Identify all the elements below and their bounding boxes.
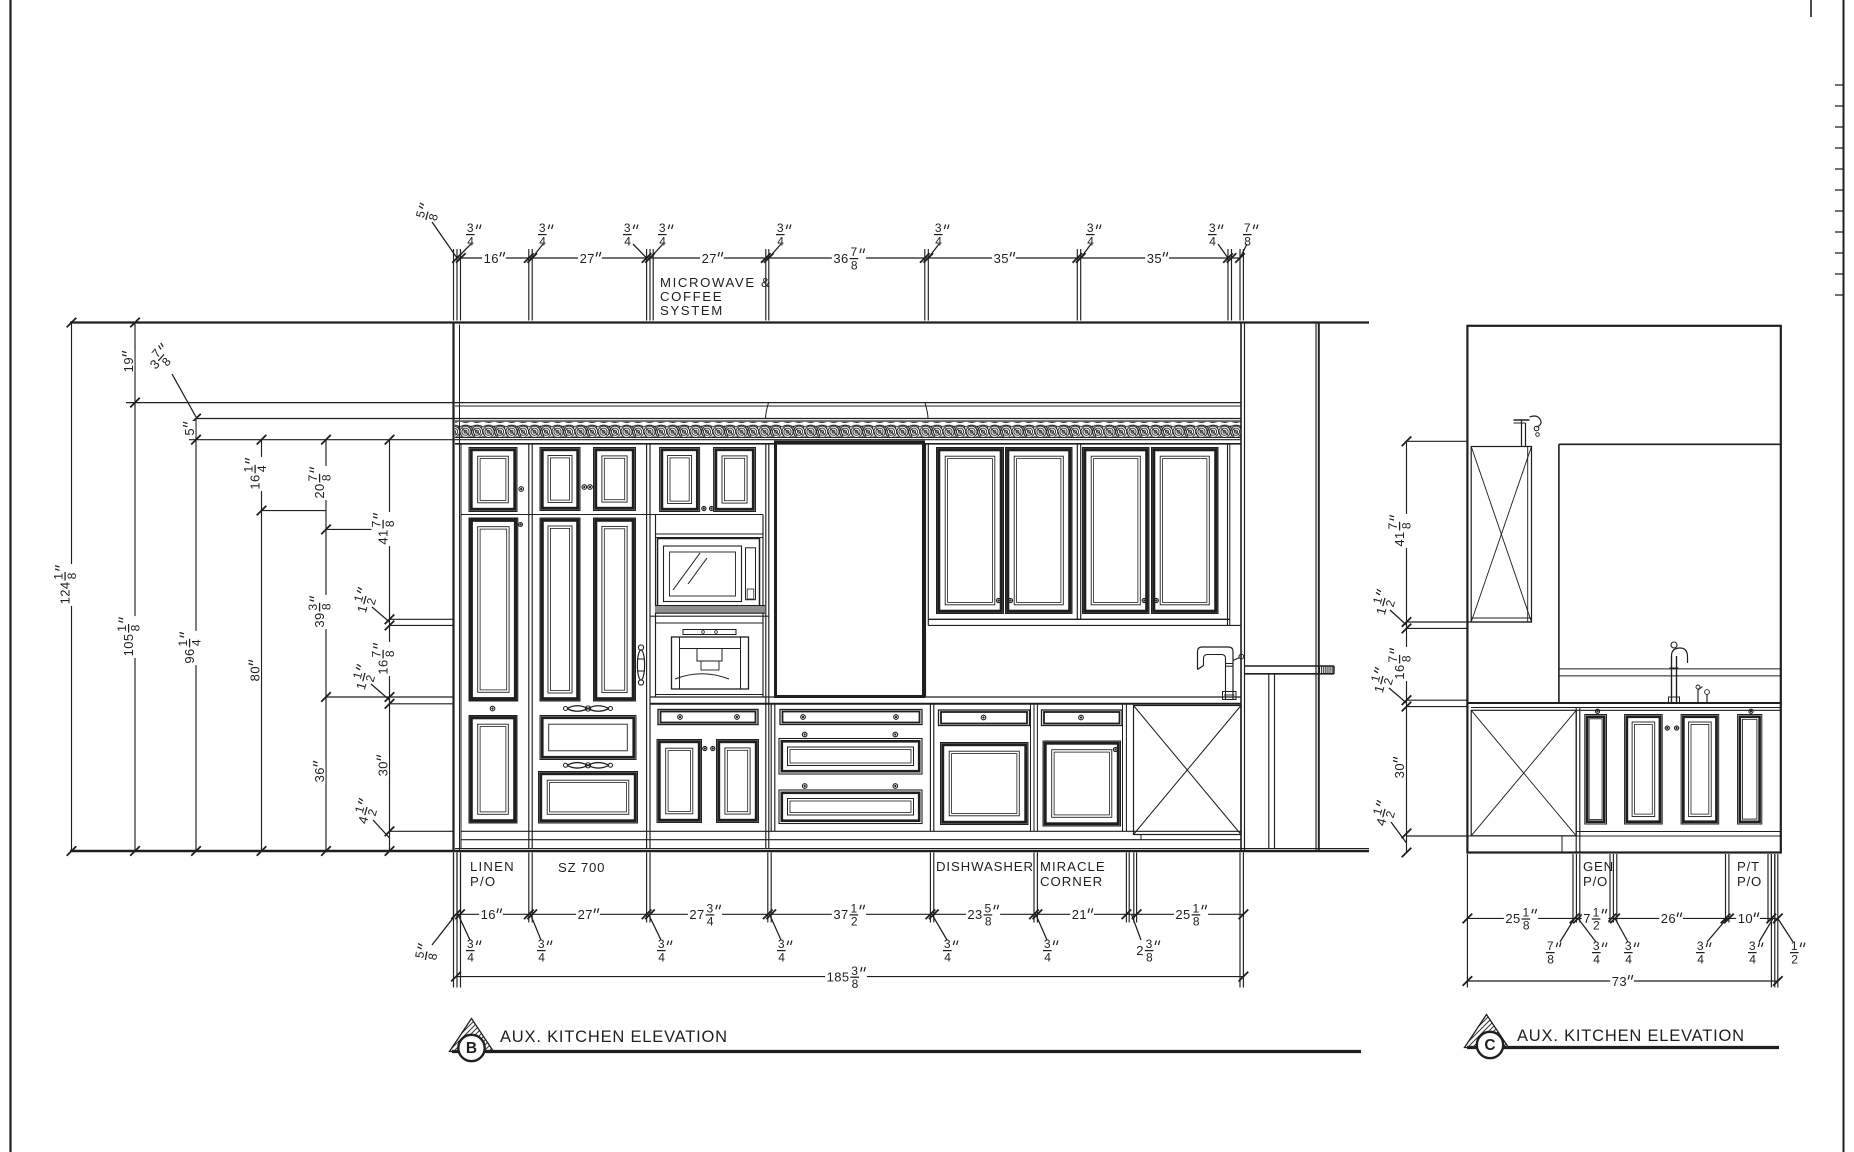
svg-text:7: 7 bbox=[1386, 523, 1400, 530]
svg-text:8: 8 bbox=[383, 520, 397, 527]
svg-text:4: 4 bbox=[1593, 952, 1600, 966]
svg-text:7: 7 bbox=[1547, 939, 1554, 953]
svg-text:DISHWASHER: DISHWASHER bbox=[936, 859, 1034, 874]
svg-text:3: 3 bbox=[706, 902, 713, 916]
svg-text:41: 41 bbox=[375, 529, 390, 544]
svg-text:3: 3 bbox=[1044, 937, 1051, 951]
svg-text:3: 3 bbox=[1593, 939, 1600, 953]
svg-text:16: 16 bbox=[1392, 664, 1407, 679]
svg-text:16: 16 bbox=[375, 659, 390, 674]
svg-text:AUX. KITCHEN ELEVATION: AUX. KITCHEN ELEVATION bbox=[500, 1028, 728, 1046]
svg-text:8: 8 bbox=[383, 650, 397, 657]
svg-text:8: 8 bbox=[1399, 655, 1413, 662]
svg-text:4: 4 bbox=[707, 915, 714, 929]
svg-text:10: 10 bbox=[1738, 911, 1753, 926]
svg-text:1: 1 bbox=[52, 573, 66, 580]
svg-text:1: 1 bbox=[242, 466, 256, 473]
svg-text:SYSTEM: SYSTEM bbox=[660, 303, 724, 318]
svg-text:MICROWAVE &: MICROWAVE & bbox=[660, 275, 771, 290]
svg-text:25: 25 bbox=[1175, 907, 1190, 922]
svg-text:3: 3 bbox=[624, 221, 631, 235]
svg-text:P/O: P/O bbox=[470, 874, 496, 889]
svg-text:4: 4 bbox=[1044, 950, 1051, 964]
svg-text:SZ 700: SZ 700 bbox=[558, 860, 605, 875]
svg-text:20: 20 bbox=[312, 483, 327, 498]
svg-text:5: 5 bbox=[182, 428, 197, 436]
svg-text:7: 7 bbox=[1244, 221, 1251, 235]
svg-text:185: 185 bbox=[827, 969, 850, 984]
svg-text:4: 4 bbox=[1749, 952, 1756, 966]
svg-text:3: 3 bbox=[467, 937, 474, 951]
svg-text:1: 1 bbox=[1791, 939, 1798, 953]
svg-text:8: 8 bbox=[1399, 522, 1413, 529]
svg-text:4: 4 bbox=[777, 234, 784, 248]
svg-text:3: 3 bbox=[467, 221, 474, 235]
svg-text:4: 4 bbox=[255, 465, 269, 472]
svg-text:3: 3 bbox=[539, 221, 546, 235]
svg-text:P/T: P/T bbox=[1737, 859, 1760, 874]
svg-text:7: 7 bbox=[1583, 911, 1591, 926]
svg-text:16: 16 bbox=[481, 907, 496, 922]
svg-text:4: 4 bbox=[467, 234, 474, 248]
svg-text:8: 8 bbox=[1523, 919, 1530, 933]
svg-text:73: 73 bbox=[1612, 974, 1627, 989]
svg-text:25: 25 bbox=[1505, 911, 1520, 926]
svg-text:3: 3 bbox=[538, 937, 545, 951]
svg-text:8: 8 bbox=[851, 258, 858, 272]
svg-text:3: 3 bbox=[1697, 939, 1704, 953]
svg-text:4: 4 bbox=[624, 234, 631, 248]
svg-text:4: 4 bbox=[658, 950, 665, 964]
svg-text:MIRACLE: MIRACLE bbox=[1040, 859, 1106, 874]
svg-text:3: 3 bbox=[1209, 221, 1216, 235]
svg-text:16: 16 bbox=[484, 251, 499, 266]
svg-text:4: 4 bbox=[1087, 234, 1094, 248]
svg-text:35: 35 bbox=[994, 251, 1009, 266]
svg-text:4: 4 bbox=[935, 234, 942, 248]
svg-text:4: 4 bbox=[778, 950, 785, 964]
svg-text:4: 4 bbox=[539, 234, 546, 248]
svg-text:8: 8 bbox=[985, 915, 992, 929]
svg-text:41: 41 bbox=[1392, 531, 1407, 546]
svg-text:3: 3 bbox=[935, 221, 942, 235]
svg-text:1: 1 bbox=[850, 902, 857, 916]
svg-text:3: 3 bbox=[1146, 937, 1153, 951]
svg-text:4: 4 bbox=[538, 950, 545, 964]
svg-text:36: 36 bbox=[833, 251, 848, 266]
svg-text:80: 80 bbox=[247, 666, 262, 681]
svg-text:23: 23 bbox=[967, 907, 982, 922]
svg-text:96: 96 bbox=[182, 648, 197, 663]
svg-text:3: 3 bbox=[1749, 939, 1756, 953]
svg-text:2: 2 bbox=[1136, 943, 1144, 958]
svg-text:27: 27 bbox=[578, 907, 593, 922]
svg-text:3: 3 bbox=[659, 221, 666, 235]
svg-text:2: 2 bbox=[851, 915, 858, 929]
svg-text:21: 21 bbox=[1072, 907, 1087, 922]
svg-text:27: 27 bbox=[689, 907, 704, 922]
svg-text:4: 4 bbox=[944, 950, 951, 964]
svg-text:30: 30 bbox=[1392, 763, 1407, 778]
svg-text:8: 8 bbox=[1547, 952, 1554, 966]
svg-text:3: 3 bbox=[778, 937, 785, 951]
svg-text:4: 4 bbox=[659, 234, 666, 248]
svg-text:7: 7 bbox=[370, 521, 384, 528]
svg-text:3: 3 bbox=[306, 604, 320, 611]
svg-text:4: 4 bbox=[1697, 952, 1704, 966]
svg-text:36: 36 bbox=[312, 767, 327, 782]
svg-text:5: 5 bbox=[984, 902, 991, 916]
svg-text:26: 26 bbox=[1661, 911, 1676, 926]
svg-text:LINEN: LINEN bbox=[470, 859, 515, 874]
svg-text:1: 1 bbox=[176, 640, 190, 647]
svg-text:105: 105 bbox=[121, 634, 136, 657]
svg-text:8: 8 bbox=[1146, 950, 1153, 964]
svg-text:4: 4 bbox=[1625, 952, 1632, 966]
svg-text:4: 4 bbox=[467, 950, 474, 964]
svg-text:1: 1 bbox=[1593, 906, 1600, 920]
svg-text:P/O: P/O bbox=[1737, 874, 1762, 889]
svg-text:AUX. KITCHEN ELEVATION: AUX. KITCHEN ELEVATION bbox=[1517, 1027, 1745, 1045]
svg-text:8: 8 bbox=[852, 977, 859, 991]
svg-text:P/O: P/O bbox=[1583, 874, 1608, 889]
svg-text:B: B bbox=[466, 1040, 477, 1057]
svg-text:C: C bbox=[1484, 1037, 1495, 1054]
svg-text:7: 7 bbox=[370, 651, 384, 658]
svg-text:COFFEE: COFFEE bbox=[660, 289, 723, 304]
svg-text:7: 7 bbox=[1386, 656, 1400, 663]
svg-text:8: 8 bbox=[65, 572, 79, 579]
svg-text:16: 16 bbox=[247, 474, 262, 489]
svg-text:1: 1 bbox=[1522, 906, 1529, 920]
svg-text:7: 7 bbox=[306, 475, 320, 482]
svg-text:124: 124 bbox=[57, 582, 72, 605]
svg-text:2: 2 bbox=[1593, 919, 1600, 933]
svg-text:2: 2 bbox=[1791, 952, 1798, 966]
svg-text:3: 3 bbox=[851, 964, 858, 978]
svg-text:39: 39 bbox=[312, 612, 327, 627]
svg-text:35: 35 bbox=[1147, 251, 1162, 266]
svg-text:19: 19 bbox=[121, 357, 136, 372]
svg-text:8: 8 bbox=[1244, 234, 1251, 248]
svg-text:4: 4 bbox=[1209, 234, 1216, 248]
svg-text:GEN: GEN bbox=[1583, 859, 1614, 874]
svg-text:30: 30 bbox=[375, 761, 390, 776]
svg-text:37: 37 bbox=[833, 907, 848, 922]
svg-text:8: 8 bbox=[319, 603, 333, 610]
svg-text:8: 8 bbox=[128, 624, 142, 631]
svg-text:1: 1 bbox=[1192, 902, 1199, 916]
svg-text:8: 8 bbox=[1193, 915, 1200, 929]
svg-text:CORNER: CORNER bbox=[1040, 874, 1103, 889]
svg-text:8: 8 bbox=[319, 474, 333, 481]
svg-text:3: 3 bbox=[1625, 939, 1632, 953]
svg-text:4: 4 bbox=[189, 639, 203, 646]
svg-text:3: 3 bbox=[944, 937, 951, 951]
svg-text:3: 3 bbox=[777, 221, 784, 235]
svg-text:1: 1 bbox=[115, 625, 129, 632]
svg-text:27: 27 bbox=[702, 251, 717, 266]
svg-text:3: 3 bbox=[1087, 221, 1094, 235]
svg-text:3: 3 bbox=[658, 937, 665, 951]
svg-text:7: 7 bbox=[850, 245, 857, 259]
svg-text:27: 27 bbox=[580, 251, 595, 266]
